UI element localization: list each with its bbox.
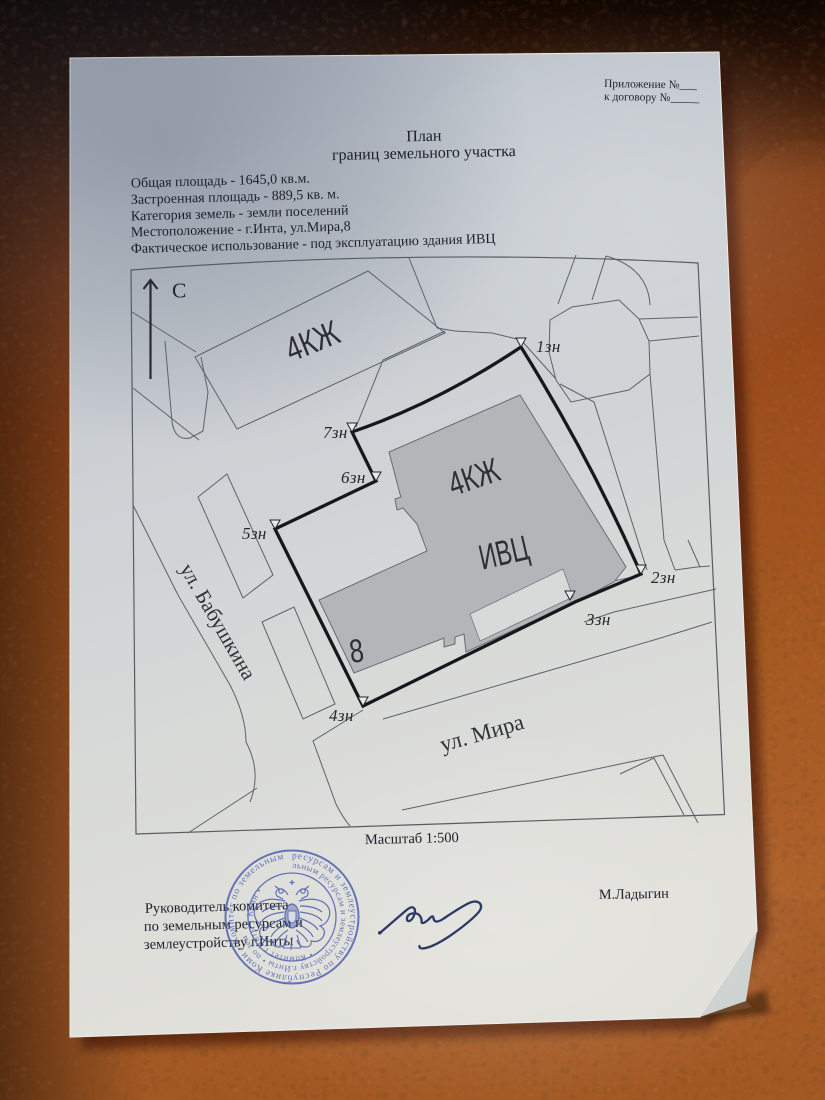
svg-text:С: С	[172, 279, 186, 303]
svg-text:2зн: 2зн	[651, 568, 676, 587]
svg-text:3зн: 3зн	[585, 610, 611, 629]
svg-text:План: План	[406, 128, 442, 146]
svg-text:4зн: 4зн	[329, 706, 354, 725]
svg-text:7зн: 7зн	[323, 423, 348, 442]
svg-text:5зн: 5зн	[242, 524, 267, 543]
svg-text:Масштаб 1:500: Масштаб 1:500	[365, 830, 459, 848]
svg-text:1зн: 1зн	[536, 337, 561, 356]
svg-text:к договору №_____: к договору №_____	[604, 91, 700, 105]
svg-text:М.Ладыгин: М.Ладыгин	[599, 886, 670, 903]
svg-text:6зн: 6зн	[341, 468, 366, 487]
svg-text:Приложение №___: Приложение №___	[604, 78, 697, 92]
